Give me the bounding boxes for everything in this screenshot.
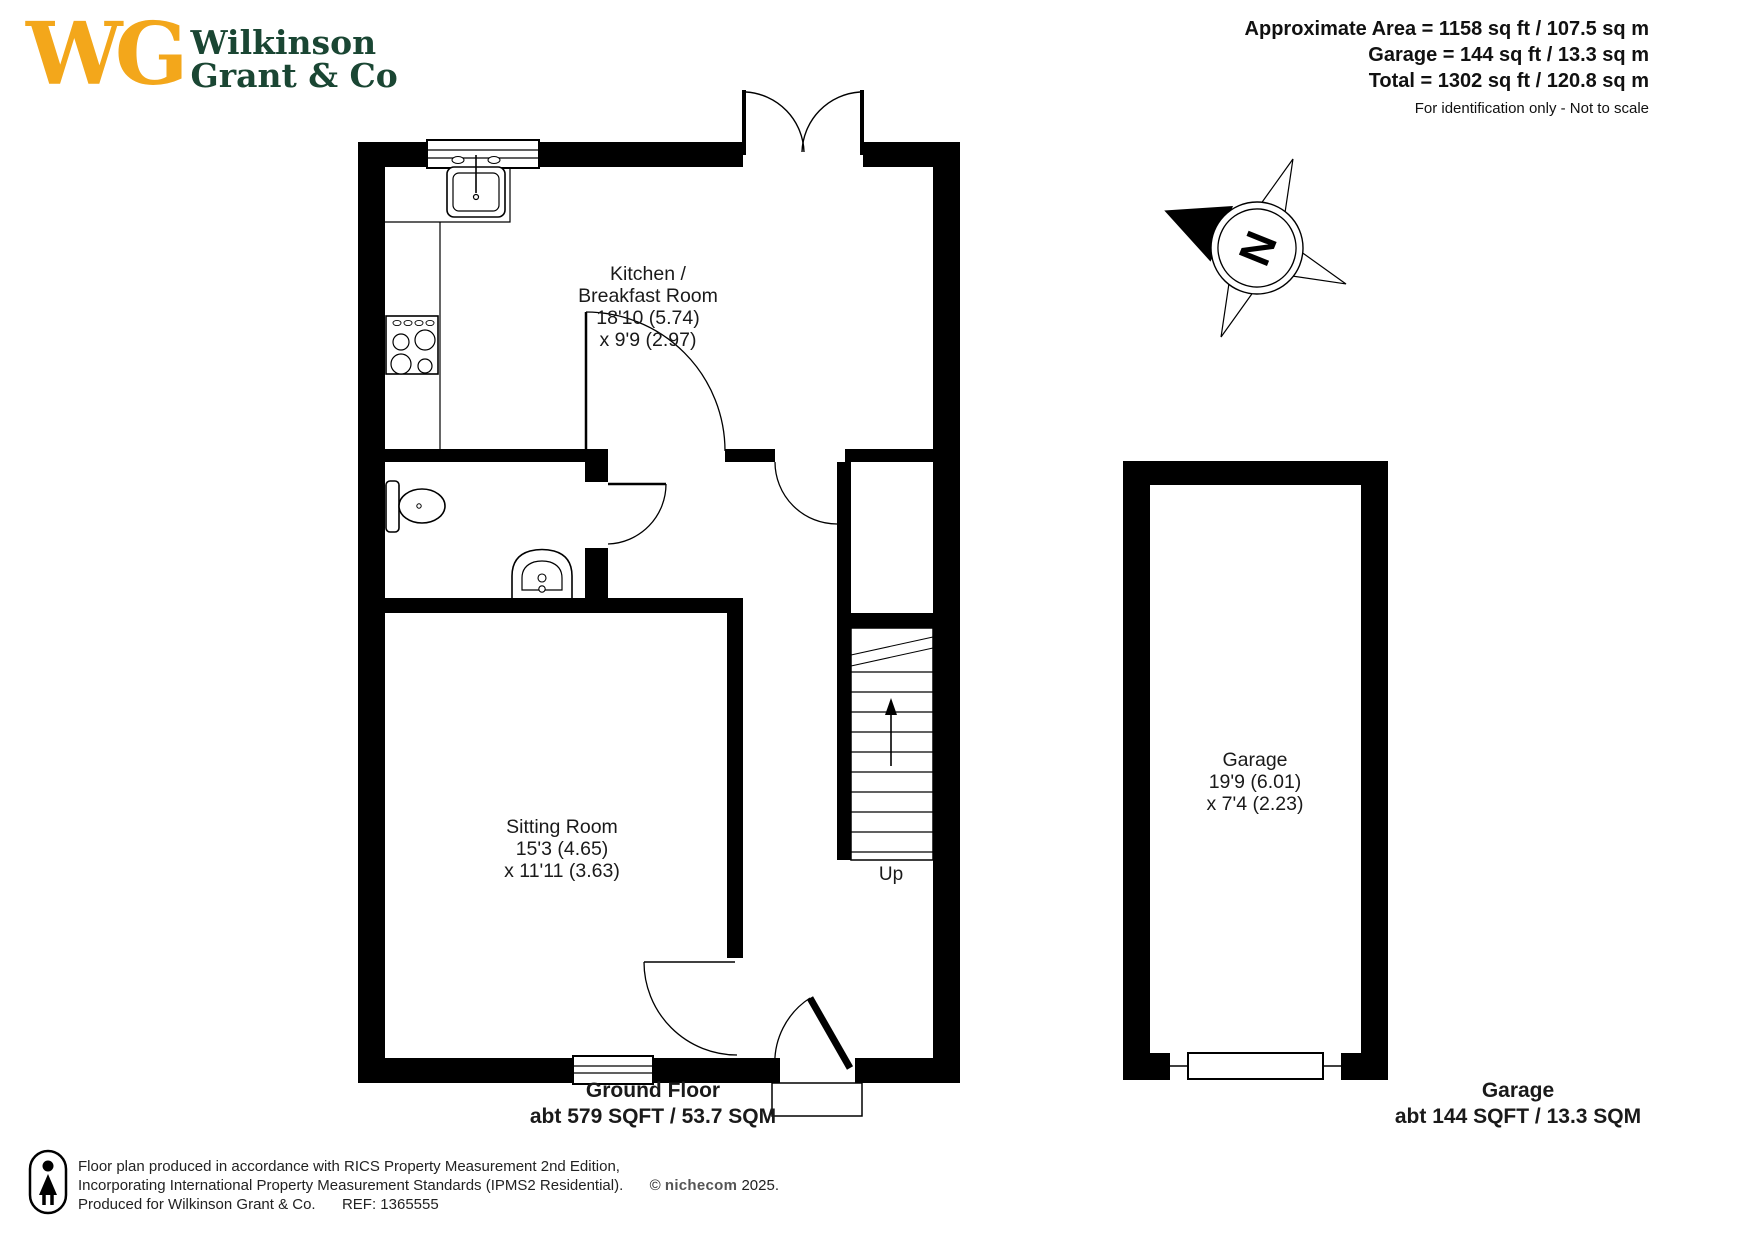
svg-text:15'3 (4.65): 15'3 (4.65) — [516, 838, 609, 860]
wall-segment — [837, 462, 851, 613]
garage-door-icon — [1170, 1053, 1341, 1079]
floorplan-page: Up — [0, 0, 1755, 1241]
garage-floor-title: Garage — [1218, 1078, 1755, 1104]
sitting-room-door-icon — [644, 962, 737, 1055]
floor-plan-svg: Up — [0, 0, 1755, 1241]
ground-floor-area: abt 579 SQFT / 53.7 SQM — [353, 1104, 953, 1130]
kitchen-label: Kitchen / Breakfast Room 18'10 (5.74) x … — [578, 263, 718, 351]
logo-name-line1: Wilkinson — [191, 26, 398, 59]
wall-segment — [1363, 1032, 1388, 1080]
nichecom-logo: nichecom — [665, 1177, 737, 1194]
wall-segment — [837, 613, 935, 628]
wall-segment — [1123, 461, 1150, 1080]
wall-segment — [358, 598, 743, 613]
wall-segment — [837, 628, 851, 860]
ground-floor-title: Ground Floor — [353, 1078, 953, 1104]
svg-text:18'10 (5.74): 18'10 (5.74) — [596, 307, 699, 329]
scale-disclaimer: For identification only - Not to scale — [1245, 100, 1649, 117]
svg-text:Kitchen /: Kitchen / — [610, 263, 686, 285]
wc-door-icon — [608, 484, 666, 544]
footer-line3: Produced for Wilkinson Grant & Co. REF: … — [78, 1195, 779, 1214]
wall-segment — [933, 142, 960, 1083]
svg-text:Breakfast Room: Breakfast Room — [578, 285, 718, 307]
garage-room-label: Garage 19'9 (6.01) x 7'4 (2.23) — [1207, 749, 1304, 815]
garage-floor-area: abt 144 SQFT / 13.3 SQM — [1218, 1104, 1755, 1130]
svg-text:19'9 (6.01): 19'9 (6.01) — [1209, 771, 1302, 793]
footer-year: 2025. — [741, 1177, 779, 1194]
window-kitchen — [427, 140, 539, 168]
wall-segment — [358, 142, 427, 167]
toilet-icon — [386, 481, 445, 532]
area-summary: Approximate Area = 1158 sq ft / 107.5 sq… — [1245, 16, 1649, 117]
svg-text:Garage: Garage — [1222, 749, 1287, 771]
wall-segment — [727, 598, 743, 958]
agency-logo: WG Wilkinson Grant & Co — [26, 14, 398, 96]
svg-text:x 7'4 (2.23): x 7'4 (2.23) — [1207, 793, 1304, 815]
logo-name: Wilkinson Grant & Co — [191, 26, 398, 92]
footer-disclaimer: Floor plan produced in accordance with R… — [78, 1157, 779, 1214]
ground-floor-label: Ground Floor abt 579 SQFT / 53.7 SQM — [353, 1078, 953, 1130]
svg-text:x 9'9 (2.97): x 9'9 (2.97) — [600, 329, 697, 351]
svg-text:Sitting Room: Sitting Room — [506, 816, 618, 838]
basin-icon — [512, 550, 572, 599]
wall-segment — [1123, 461, 1388, 485]
garage-floor-label: Garage abt 144 SQFT / 13.3 SQM — [1218, 1078, 1755, 1130]
wall-segment — [1148, 1053, 1170, 1080]
logo-monogram: WG — [26, 14, 181, 96]
approximate-area-line: Approximate Area = 1158 sq ft / 107.5 sq… — [1245, 16, 1649, 42]
wall-segment — [358, 449, 585, 462]
compass-icon: N — [1128, 122, 1382, 373]
wall-segment — [1123, 1032, 1148, 1080]
person-icon — [26, 1148, 70, 1216]
staircase: Up — [851, 628, 933, 885]
footer-line2: Incorporating International Property Mea… — [78, 1176, 779, 1195]
wall-segment — [1361, 461, 1388, 1080]
logo-name-line2: Grant & Co — [191, 59, 398, 92]
wall-segment — [585, 449, 608, 482]
svg-text:x 11'11 (3.63): x 11'11 (3.63) — [504, 860, 620, 882]
double-door-icon — [744, 90, 862, 155]
wall-segment — [845, 449, 960, 462]
total-area-line: Total = 1302 sq ft / 120.8 sq m — [1245, 68, 1649, 94]
reference-number: REF: 1365555 — [342, 1196, 439, 1213]
hall-door-icon — [775, 462, 837, 524]
stairs-up-label: Up — [879, 864, 903, 885]
garage-area-line: Garage = 144 sq ft / 13.3 sq m — [1245, 42, 1649, 68]
hob-icon — [386, 316, 438, 374]
produced-for-text: Produced for Wilkinson Grant & Co. — [78, 1196, 316, 1213]
wall-segment — [539, 142, 743, 167]
wall-segment — [1341, 1053, 1363, 1080]
footer-line2-text: Incorporating International Property Mea… — [78, 1177, 623, 1194]
wall-segment — [725, 449, 775, 462]
footer-line1: Floor plan produced in accordance with R… — [78, 1157, 779, 1176]
sitting-room-label: Sitting Room 15'3 (4.65) x 11'11 (3.63) — [504, 816, 620, 882]
copyright-symbol: © — [650, 1177, 661, 1194]
